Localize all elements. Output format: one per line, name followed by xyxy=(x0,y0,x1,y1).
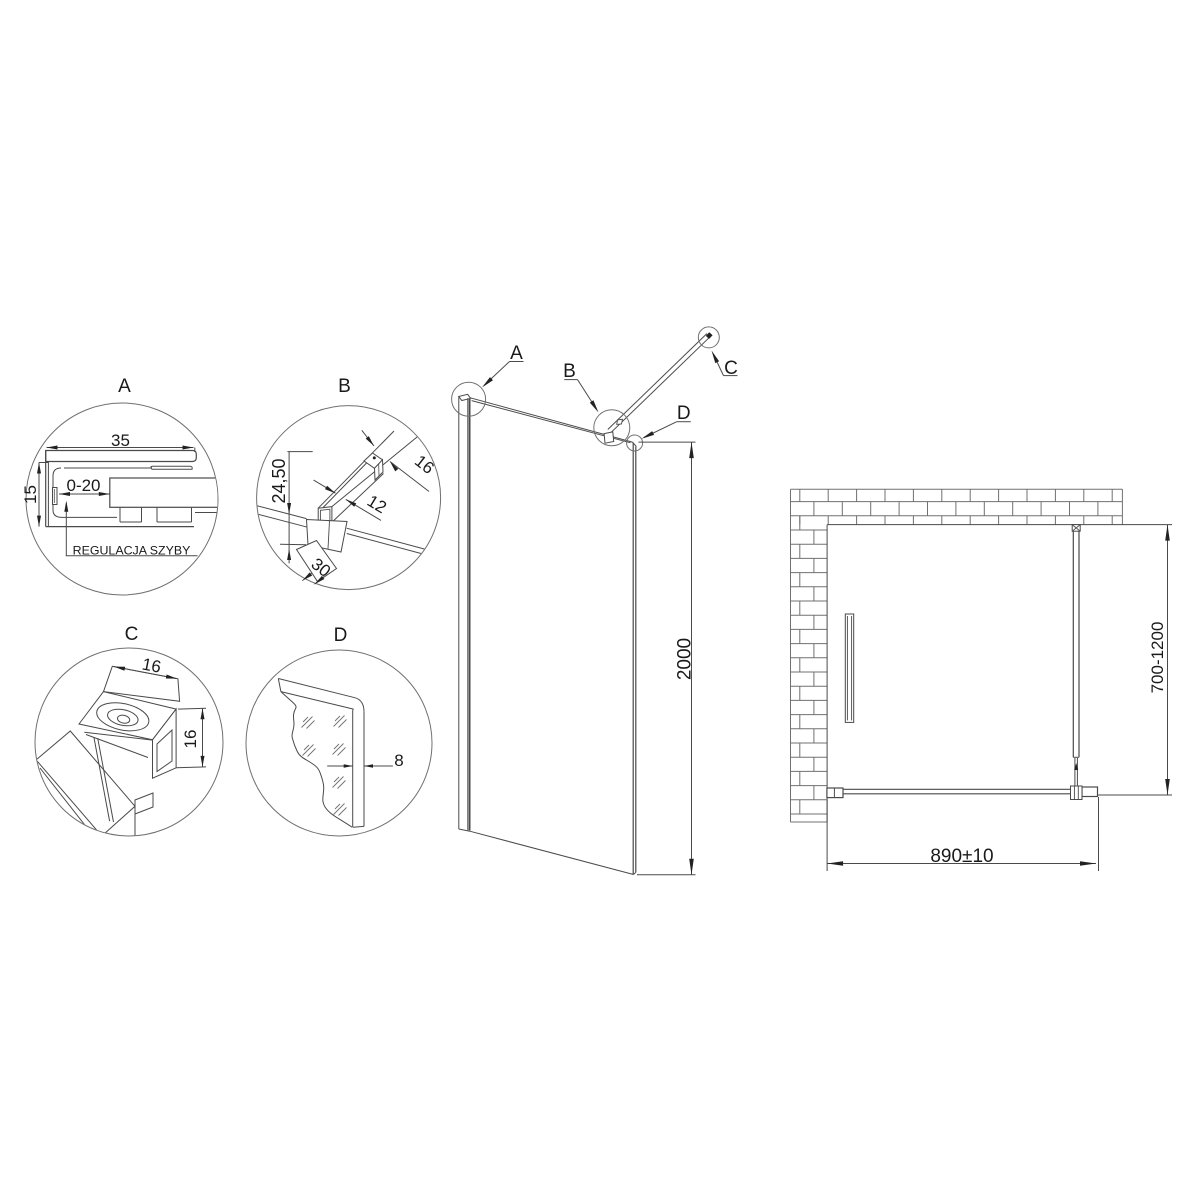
svg-text:0-20: 0-20 xyxy=(66,476,100,495)
svg-text:A: A xyxy=(118,376,131,397)
svg-text:15: 15 xyxy=(21,485,40,504)
svg-text:B: B xyxy=(563,361,576,382)
svg-text:D: D xyxy=(677,403,691,424)
svg-text:2000: 2000 xyxy=(675,638,696,680)
svg-text:35: 35 xyxy=(111,431,130,450)
svg-text:24,50: 24,50 xyxy=(269,458,289,503)
svg-text:C: C xyxy=(125,624,139,645)
svg-text:A: A xyxy=(510,343,523,364)
svg-text:16: 16 xyxy=(140,654,162,676)
svg-text:890±10: 890±10 xyxy=(930,846,993,867)
svg-text:700-1200: 700-1200 xyxy=(1148,622,1167,694)
svg-text:16: 16 xyxy=(181,730,200,749)
svg-text:D: D xyxy=(334,625,348,646)
svg-text:8: 8 xyxy=(394,751,403,770)
svg-text:B: B xyxy=(338,376,351,397)
